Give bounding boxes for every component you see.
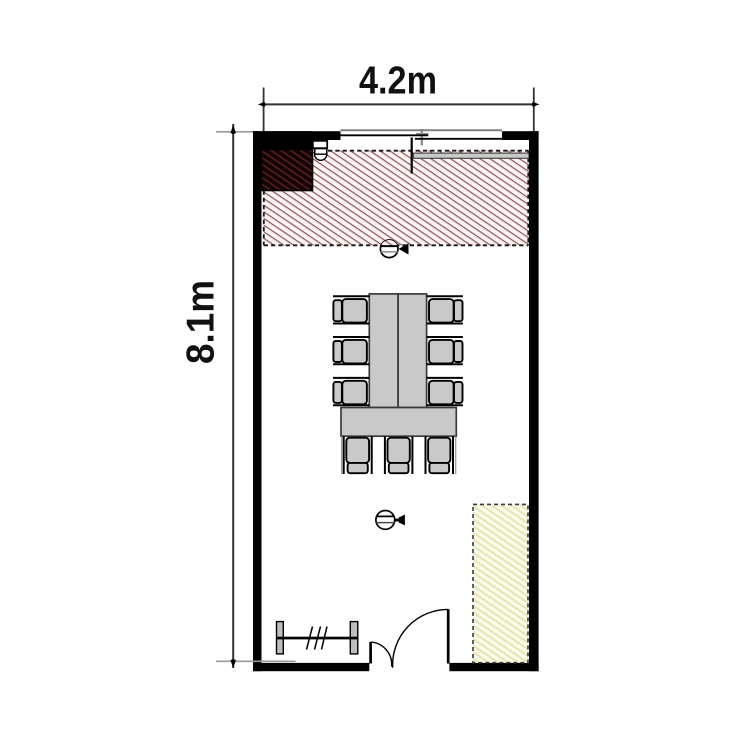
svg-text:4.2m: 4.2m <box>359 60 437 103</box>
svg-text:8.1m: 8.1m <box>180 280 223 364</box>
